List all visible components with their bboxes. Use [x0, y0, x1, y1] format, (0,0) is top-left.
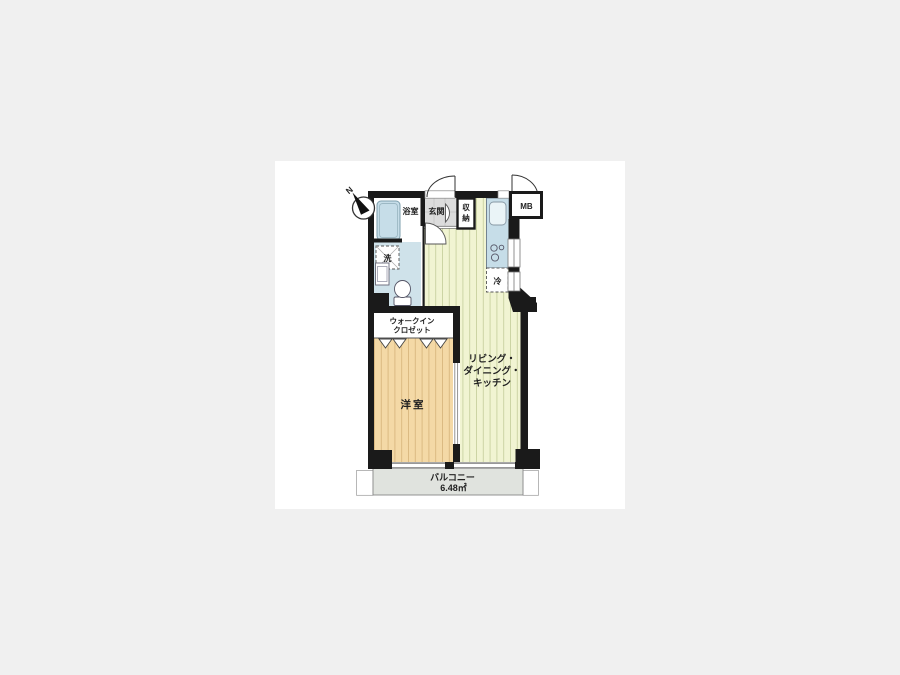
meter-box-label: MB [520, 202, 533, 211]
balcony-side-strip-left [357, 471, 374, 496]
meter-box: MB [511, 193, 542, 218]
wall-bath-bottom [374, 239, 402, 243]
floorplan-canvas: 洗 冷 [275, 161, 625, 509]
bathtub-icon [377, 201, 400, 240]
balcony-side-strip-right [523, 471, 539, 496]
wall-left [368, 191, 374, 469]
ldk-label-3: キッチン [473, 378, 511, 389]
refrigerator-icon: 冷 [487, 268, 509, 292]
vanity-sink-icon [376, 263, 390, 285]
pillar-mid-left [368, 293, 389, 312]
wall-top-left [368, 191, 425, 198]
pillar-bottom-left [368, 450, 392, 469]
wall-partition-top [453, 307, 460, 363]
storage-box: 収 納 [458, 199, 475, 229]
storage-label-2: 納 [462, 213, 470, 223]
bathroom-label: 浴室 [403, 206, 419, 216]
wall-right-lower [521, 306, 529, 451]
wall-bath-entrance [421, 198, 426, 226]
toilet-icon [394, 281, 411, 306]
ldk-label-2: ダイニング・ [463, 365, 520, 377]
wall-washroom-right [423, 226, 425, 308]
washer-label: 洗 [384, 253, 392, 263]
wall-partition-bottom [453, 444, 460, 462]
ldk-label-1: リビング・ [468, 353, 516, 365]
western-room-label: 洋室 [401, 398, 426, 411]
fridge-label: 冷 [494, 276, 502, 286]
compass-icon: N [344, 184, 375, 219]
floorplan-diagram: 洗 冷 [275, 161, 625, 511]
right-wall-windows [508, 239, 520, 291]
storage-label-1: 収 [462, 202, 470, 212]
balcony-area-label: 6.48㎡ [440, 482, 467, 493]
room-sliding-door-icon [455, 363, 458, 444]
balcony-label: バルコニー [430, 473, 475, 483]
kitchen-sink-icon [490, 202, 507, 225]
entrance-label: 玄関 [429, 206, 445, 216]
wall-top-mid [455, 191, 498, 198]
kitchen-counter [487, 198, 510, 268]
pillar-bottom-right [516, 449, 541, 469]
walk-in-closet-label-2: クロゼット [393, 325, 431, 335]
pillar-mid-right [514, 297, 536, 312]
walk-in-closet-label-1: ウォークイン [390, 316, 435, 326]
